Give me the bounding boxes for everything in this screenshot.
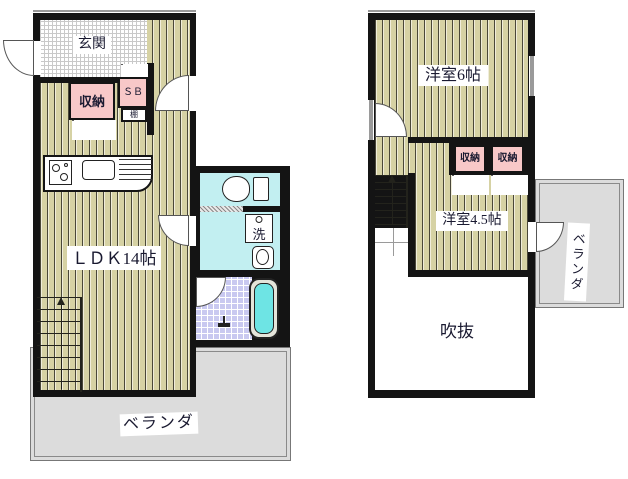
western-room-45-label: 洋室4.5帖: [436, 211, 508, 231]
stairs-2f-arrow-line: [392, 182, 393, 225]
shower-faucet-stem: [223, 316, 225, 324]
shelf-box: 棚: [121, 108, 147, 122]
washroom: 洗: [200, 212, 280, 270]
stairs-up-arrow-icon-2f: [388, 175, 396, 183]
washbasin-icon: [252, 246, 274, 269]
void-label: 吹抜: [433, 319, 481, 344]
storage-1f-label: 収納: [79, 95, 105, 108]
closet-row-2f: 収納 収納: [449, 137, 528, 175]
floorplan-canvas: ベランダ 洗 玄関: [0, 0, 628, 479]
top-edge-line-1f: [33, 10, 196, 12]
closet-left-folding-doors: [452, 175, 489, 195]
stairs-1f-arrow-line: [61, 304, 62, 389]
washing-machine-icon: 洗: [245, 214, 273, 243]
wall-gap-hall-ldk: [188, 76, 196, 111]
storage-2f-left-label: 収納: [460, 154, 480, 164]
top-edge-line-2f: [368, 10, 535, 12]
kitchen-counter: [43, 155, 153, 192]
room45-left-wall: [408, 173, 415, 277]
veranda-1f-label: ベランダ: [120, 412, 199, 437]
window-room6-left: [368, 100, 374, 140]
veranda-2f-label: ベランダ: [564, 222, 590, 301]
storage-2f-right-label: 収納: [498, 154, 518, 164]
stove-icon: [49, 160, 72, 185]
hallway-2f: [375, 137, 408, 175]
shoebox-doors: [121, 64, 148, 77]
counter-drainer-lines: [119, 159, 152, 180]
wet-area-block-1f: 洗: [190, 166, 290, 347]
ldk-label: ＬＤＫ14帖: [67, 246, 161, 270]
storage-closet-2f-left: 収納: [454, 145, 486, 173]
shoe-box-label: ＳＢ: [123, 88, 143, 98]
entrance-label: 玄関: [73, 36, 111, 54]
window-room6-right: [529, 56, 535, 96]
toilet-icon: [222, 176, 250, 202]
stairs-1f: [37, 297, 82, 392]
main-block-1f: 玄関 収納 ＳＢ 棚 ＬＤＫ14帖: [33, 13, 196, 397]
wall-gap-ldk-washroom: [188, 216, 196, 246]
shoe-box: ＳＢ: [118, 77, 148, 108]
stairs-landing: [375, 228, 408, 256]
storage-closet-2f-right: 収納: [491, 145, 524, 173]
storage-1f-folding-doors: [72, 120, 116, 140]
stairs-up-arrow-icon-1f: [57, 297, 65, 305]
main-block-2f: 洋室6帖 収納 収納 洋室4.5帖 吹抜: [368, 13, 535, 398]
wall-gap-entrance: [33, 41, 41, 75]
toilet-room: [200, 173, 280, 206]
stairs-2f: [375, 175, 408, 228]
shelf-label: 棚: [130, 111, 138, 119]
kitchen-sink-icon: [82, 160, 115, 180]
western-room-6-label: 洋室6帖: [418, 65, 488, 86]
storage-closet-1f: 収納: [69, 82, 115, 120]
wall-gap-veranda-2f: [528, 222, 536, 252]
toilet-tank-icon: [253, 177, 269, 201]
entrance-door-arc: [3, 40, 34, 76]
closet-right-folding-doors: [491, 175, 528, 195]
bathtub-icon: [249, 278, 279, 339]
sb-side-wall: [147, 63, 154, 135]
room45-bottom-wall: [408, 270, 535, 277]
laundry-label: 洗: [246, 227, 272, 241]
